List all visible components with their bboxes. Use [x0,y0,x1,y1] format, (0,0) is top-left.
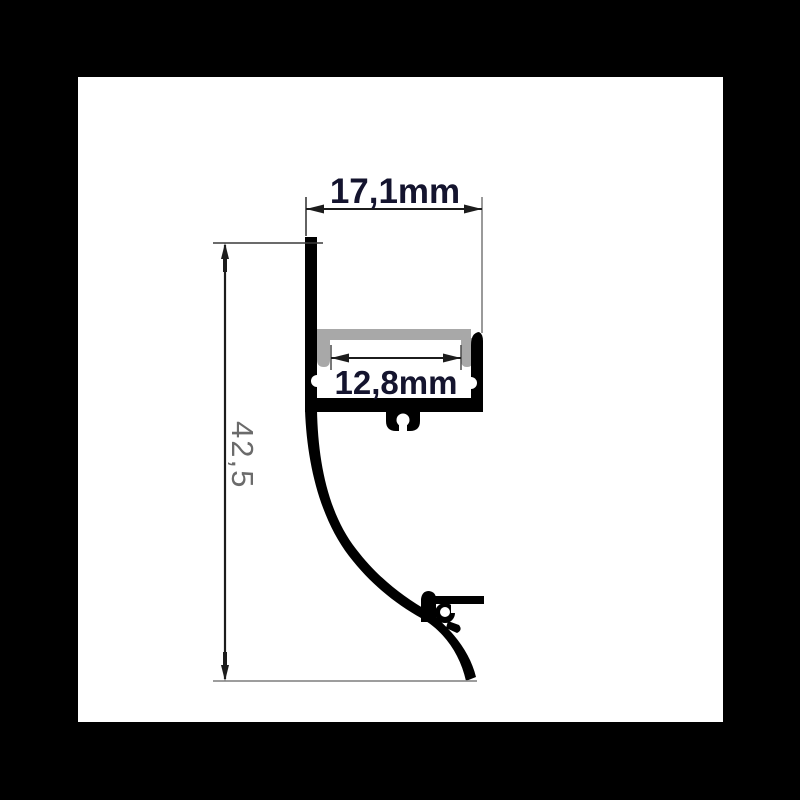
screw-notch-left [311,375,323,387]
arrow-up-stem [223,259,227,272]
diffuser-bar [317,329,471,340]
arrow-up-icon [221,243,229,259]
technical-drawing: 17,1mm 12,8mm 42,5 [0,0,800,800]
clip-hook-opening [451,604,467,613]
profile-left-wall [305,237,317,398]
clip-hook-notch [440,607,450,617]
arrow-right-icon [464,205,482,214]
dimension-width-top: 17,1mm [306,172,482,333]
width-inner-label: 12,8mm [335,364,458,401]
arrow-down-stem [223,652,227,665]
dimension-width-inner: 12,8mm [331,345,461,401]
clip-arm [434,596,484,604]
screw-notch-right [465,377,477,389]
arrow-down-icon [221,665,229,681]
wall-flange [305,410,476,681]
height-label: 42,5 [225,421,260,489]
arrow-left-icon [331,354,349,363]
width-top-label: 17,1mm [330,172,460,211]
profile-cross-section [305,237,484,681]
arrow-right-icon [443,354,461,363]
clip-stub [421,591,436,622]
keyhole-slot-opening [399,421,407,433]
arrow-left-icon [306,205,324,214]
diffuser-leg-left [317,338,330,367]
